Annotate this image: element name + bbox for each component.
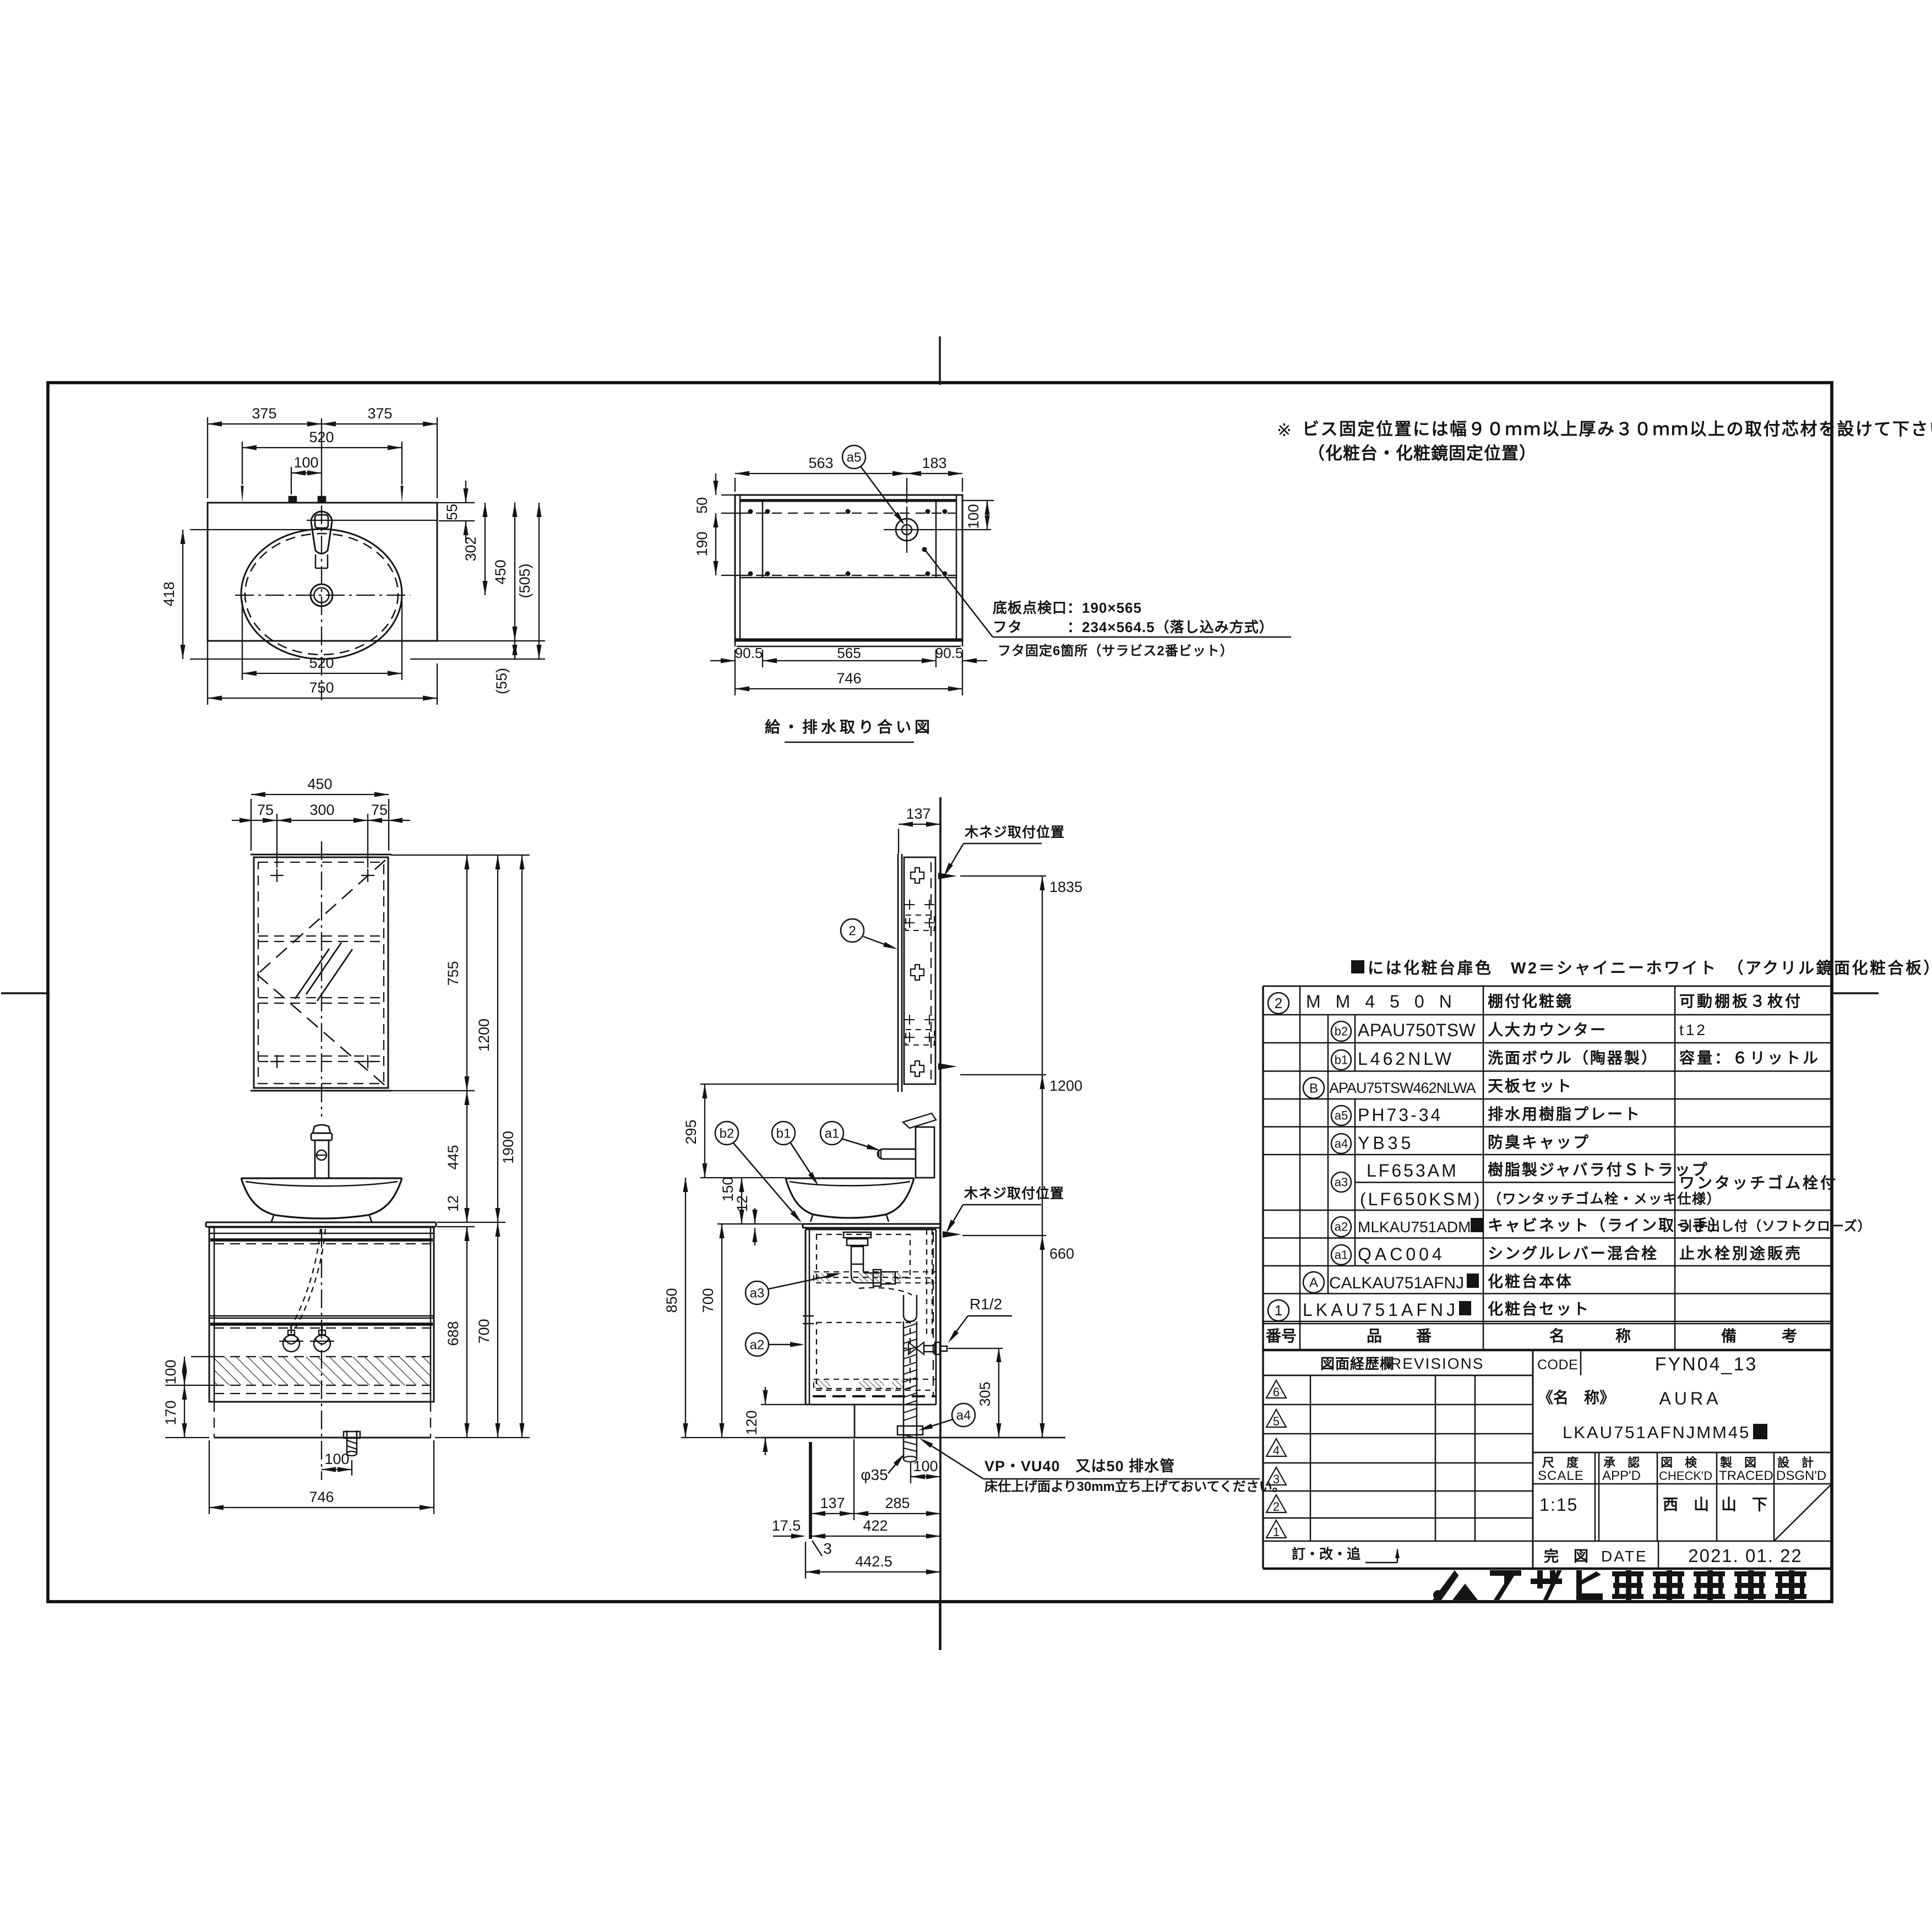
svg-text:137: 137 xyxy=(820,1495,845,1511)
svg-text:17.5: 17.5 xyxy=(772,1517,801,1534)
svg-text:a3: a3 xyxy=(750,1286,765,1300)
svg-text:容量：６リットル: 容量：６リットル xyxy=(1679,1049,1820,1066)
svg-text:山 下: 山 下 xyxy=(1721,1496,1767,1513)
svg-text:天板セット: 天板セット xyxy=(1488,1077,1573,1095)
svg-text:には化粧台扉色 W2＝シャイニーホワイト （アクリル鏡面化粧: には化粧台扉色 W2＝シャイニーホワイト （アクリル鏡面化粧合板） xyxy=(1368,959,1932,977)
svg-text:a5: a5 xyxy=(847,450,862,465)
svg-text:12: 12 xyxy=(734,1195,750,1212)
svg-text:b1: b1 xyxy=(776,1126,791,1141)
svg-text:（ワンタッチゴム栓・メッキ仕様）: （ワンタッチゴム栓・メッキ仕様） xyxy=(1488,1191,1721,1207)
svg-text:FYN04_13: FYN04_13 xyxy=(1655,1354,1758,1375)
svg-text:4: 4 xyxy=(1273,1444,1280,1457)
svg-text:746: 746 xyxy=(836,670,861,687)
svg-text:3: 3 xyxy=(823,1540,832,1557)
svg-text:LKAU751AFNJMM45: LKAU751AFNJMM45 xyxy=(1563,1423,1750,1442)
svg-text:700: 700 xyxy=(700,1288,716,1313)
svg-text:a1: a1 xyxy=(825,1126,840,1141)
svg-text:a4: a4 xyxy=(956,1408,971,1423)
svg-text:450: 450 xyxy=(307,776,332,792)
svg-text:REVISIONS: REVISIONS xyxy=(1390,1355,1484,1372)
svg-text:375: 375 xyxy=(367,405,392,422)
svg-text:1: 1 xyxy=(1275,1302,1282,1319)
svg-text:190: 190 xyxy=(694,531,710,556)
svg-text:75: 75 xyxy=(371,802,388,818)
svg-text:b1: b1 xyxy=(1335,1053,1348,1067)
svg-text:CALKAU751AFNJ: CALKAU751AFNJ xyxy=(1329,1274,1464,1292)
svg-text:木ネジ取付位置: 木ネジ取付位置 xyxy=(964,824,1065,840)
svg-text:375: 375 xyxy=(252,405,276,422)
svg-text:750: 750 xyxy=(309,679,334,696)
svg-text:137: 137 xyxy=(906,806,930,822)
svg-text:755: 755 xyxy=(445,961,461,986)
svg-text:660: 660 xyxy=(1049,1245,1074,1262)
svg-text:φ35: φ35 xyxy=(861,1466,888,1483)
svg-text:1200: 1200 xyxy=(476,1019,492,1052)
svg-text:300: 300 xyxy=(309,802,334,818)
svg-text:LKAU751AFNJ: LKAU751AFNJ xyxy=(1303,1300,1458,1320)
svg-text:688: 688 xyxy=(445,1321,461,1346)
svg-text:ワンタッチゴム栓付: ワンタッチゴム栓付 xyxy=(1679,1174,1838,1191)
svg-text:(LF650KSM): (LF650KSM) xyxy=(1360,1189,1482,1209)
svg-text:100: 100 xyxy=(965,504,982,529)
svg-text:西 山: 西 山 xyxy=(1663,1496,1709,1513)
svg-text:樹脂製ジャバラ付Ｓトラップ: 樹脂製ジャバラ付Ｓトラップ xyxy=(1488,1161,1709,1178)
svg-text:B: B xyxy=(1309,1081,1318,1096)
svg-text:SCALE: SCALE xyxy=(1538,1468,1584,1483)
svg-text:418: 418 xyxy=(161,581,177,606)
svg-text:a3: a3 xyxy=(1335,1175,1348,1189)
svg-text:746: 746 xyxy=(309,1489,334,1505)
svg-text:YB35: YB35 xyxy=(1358,1133,1414,1153)
svg-text:《名 称》: 《名 称》 xyxy=(1538,1389,1615,1406)
svg-text:1: 1 xyxy=(1273,1525,1280,1539)
svg-text:LF653AM: LF653AM xyxy=(1367,1161,1458,1180)
svg-text:450: 450 xyxy=(492,559,509,584)
svg-text:(505): (505) xyxy=(516,563,533,598)
svg-text:90.5: 90.5 xyxy=(735,645,763,661)
svg-text:183: 183 xyxy=(922,455,946,471)
svg-text:防臭キャップ: 防臭キャップ xyxy=(1488,1134,1590,1151)
svg-text:排水用樹脂プレート: 排水用樹脂プレート xyxy=(1488,1106,1641,1123)
svg-text:APP'D: APP'D xyxy=(1602,1468,1641,1483)
svg-text:L462NLW: L462NLW xyxy=(1358,1049,1454,1069)
svg-text:（化粧台・化粧鏡固定位置）: （化粧台・化粧鏡固定位置） xyxy=(1308,444,1537,463)
svg-text:称: 称 xyxy=(1615,1327,1631,1345)
svg-text:170: 170 xyxy=(162,1400,179,1425)
svg-text:a5: a5 xyxy=(1335,1109,1348,1123)
svg-text:295: 295 xyxy=(683,1119,699,1144)
svg-text:番号: 番号 xyxy=(1266,1327,1297,1345)
svg-text:100: 100 xyxy=(293,454,318,471)
svg-text:完 図: 完 図 xyxy=(1544,1548,1588,1565)
svg-text:図 検: 図 検 xyxy=(1661,1456,1697,1470)
svg-text:製 図: 製 図 xyxy=(1719,1456,1756,1470)
svg-text:2: 2 xyxy=(1273,1500,1280,1514)
svg-text:520: 520 xyxy=(309,655,334,671)
svg-text:化粧台セット: 化粧台セット xyxy=(1488,1300,1590,1318)
svg-text:DATE: DATE xyxy=(1601,1548,1648,1565)
svg-text:設 計: 設 計 xyxy=(1777,1456,1814,1470)
svg-text:422: 422 xyxy=(863,1517,888,1534)
svg-text:305: 305 xyxy=(977,1381,993,1406)
svg-text:品: 品 xyxy=(1367,1327,1382,1345)
svg-text:シングルレバー混合栓: シングルレバー混合栓 xyxy=(1488,1244,1658,1262)
svg-text:CHECK'D: CHECK'D xyxy=(1659,1469,1712,1483)
svg-text:TRACED: TRACED xyxy=(1719,1468,1773,1483)
svg-text:55: 55 xyxy=(444,504,460,520)
svg-text:VP・VU40 又は50 排水管: VP・VU40 又は50 排水管 xyxy=(984,1458,1175,1474)
svg-text:考: 考 xyxy=(1782,1327,1797,1345)
svg-text:※: ※ xyxy=(1277,420,1292,440)
svg-text:番: 番 xyxy=(1416,1327,1432,1345)
svg-text:1200: 1200 xyxy=(1049,1077,1082,1094)
svg-text:MLKAU751ADM: MLKAU751ADM xyxy=(1358,1218,1471,1236)
svg-text:120: 120 xyxy=(743,1410,760,1435)
svg-text:QAC004: QAC004 xyxy=(1358,1244,1445,1264)
svg-text:b2: b2 xyxy=(720,1126,734,1141)
svg-text:化粧台本体: 化粧台本体 xyxy=(1488,1272,1573,1290)
svg-text:1835: 1835 xyxy=(1049,879,1082,895)
svg-text:1900: 1900 xyxy=(500,1131,516,1164)
svg-text:フタ固定6箇所（サラビス2番ビット）: フタ固定6箇所（サラビス2番ビット） xyxy=(998,643,1234,658)
svg-text:訂・改・追: 訂・改・追 xyxy=(1292,1546,1360,1562)
svg-text:1:15: 1:15 xyxy=(1539,1495,1578,1515)
svg-text:DSGN'D: DSGN'D xyxy=(1776,1468,1826,1483)
svg-text:442.5: 442.5 xyxy=(855,1553,892,1570)
svg-text:75: 75 xyxy=(257,802,274,818)
svg-text:給・排水取り合い図: 給・排水取り合い図 xyxy=(765,718,933,736)
svg-text:AURA: AURA xyxy=(1659,1389,1722,1408)
svg-text:PH73-34: PH73-34 xyxy=(1358,1105,1443,1125)
svg-text:850: 850 xyxy=(663,1288,680,1313)
svg-text:A: A xyxy=(1309,1275,1318,1290)
svg-text:引き出し付（ソフトクローズ）: 引き出し付（ソフトクローズ） xyxy=(1679,1218,1871,1234)
svg-text:6: 6 xyxy=(1273,1385,1280,1399)
svg-text:2: 2 xyxy=(848,923,856,938)
svg-text:木ネジ取付位置: 木ネジ取付位置 xyxy=(964,1185,1064,1201)
svg-text:APAU75TSW462NLWA: APAU75TSW462NLWA xyxy=(1329,1080,1476,1096)
svg-text:承 認: 承 認 xyxy=(1603,1456,1640,1470)
svg-text:100: 100 xyxy=(913,1458,938,1474)
svg-text:a2: a2 xyxy=(750,1337,765,1352)
svg-text:3: 3 xyxy=(1273,1472,1280,1486)
svg-text:CODE: CODE xyxy=(1537,1357,1578,1373)
svg-text:5: 5 xyxy=(1273,1414,1280,1428)
svg-text:(55): (55) xyxy=(493,668,510,694)
svg-text:床仕上げ面より30mm立ち上げておいてください。: 床仕上げ面より30mm立ち上げておいてください。 xyxy=(984,1479,1286,1494)
svg-text:止水栓別途販売: 止水栓別途販売 xyxy=(1679,1244,1803,1262)
svg-text:尺 度: 尺 度 xyxy=(1542,1456,1579,1470)
svg-text:ビス固定位置には幅９０ｍｍ以上厚み３０ｍｍ以上の取付芯材を設: ビス固定位置には幅９０ｍｍ以上厚み３０ｍｍ以上の取付芯材を設けて下さい。 xyxy=(1302,420,1932,439)
svg-text:R1/2: R1/2 xyxy=(970,1296,1002,1313)
svg-text:302: 302 xyxy=(462,536,479,561)
svg-text:底板点検口：190×565: 底板点検口：190×565 xyxy=(993,600,1142,616)
svg-text:洗面ボウル（陶器製）: 洗面ボウル（陶器製） xyxy=(1488,1049,1658,1066)
svg-text:名: 名 xyxy=(1549,1327,1565,1345)
svg-text:445: 445 xyxy=(445,1145,461,1169)
svg-text:t12: t12 xyxy=(1679,1021,1707,1038)
svg-text:565: 565 xyxy=(837,645,861,661)
svg-text:図面経歴欄: 図面経歴欄 xyxy=(1320,1356,1395,1372)
svg-text:フタ ：234×564.5（落し込み方式）: フタ ：234×564.5（落し込み方式） xyxy=(993,619,1274,635)
svg-text:2021. 01. 22: 2021. 01. 22 xyxy=(1688,1545,1803,1566)
svg-text:a4: a4 xyxy=(1335,1137,1348,1151)
svg-text:520: 520 xyxy=(309,429,334,445)
svg-text:b2: b2 xyxy=(1335,1025,1348,1038)
svg-text:100: 100 xyxy=(162,1359,179,1384)
svg-text:a1: a1 xyxy=(1335,1248,1348,1262)
svg-text:a2: a2 xyxy=(1335,1220,1348,1234)
svg-text:APAU750TSW: APAU750TSW xyxy=(1358,1020,1476,1040)
svg-text:90.5: 90.5 xyxy=(935,645,964,661)
svg-text:563: 563 xyxy=(808,455,833,471)
svg-text:MM450N: MM450N xyxy=(1306,992,1467,1011)
svg-text:可動棚板３枚付: 可動棚板３枚付 xyxy=(1679,993,1803,1010)
svg-text:人大カウンター: 人大カウンター xyxy=(1488,1021,1607,1038)
svg-text:備: 備 xyxy=(1721,1327,1737,1345)
svg-text:50: 50 xyxy=(694,497,710,514)
svg-text:12: 12 xyxy=(445,1195,461,1212)
svg-text:棚付化粧鏡: 棚付化粧鏡 xyxy=(1488,992,1573,1010)
svg-text:2: 2 xyxy=(1275,995,1282,1011)
svg-text:700: 700 xyxy=(476,1319,492,1343)
svg-text:100: 100 xyxy=(324,1451,349,1467)
svg-text:285: 285 xyxy=(885,1495,910,1511)
